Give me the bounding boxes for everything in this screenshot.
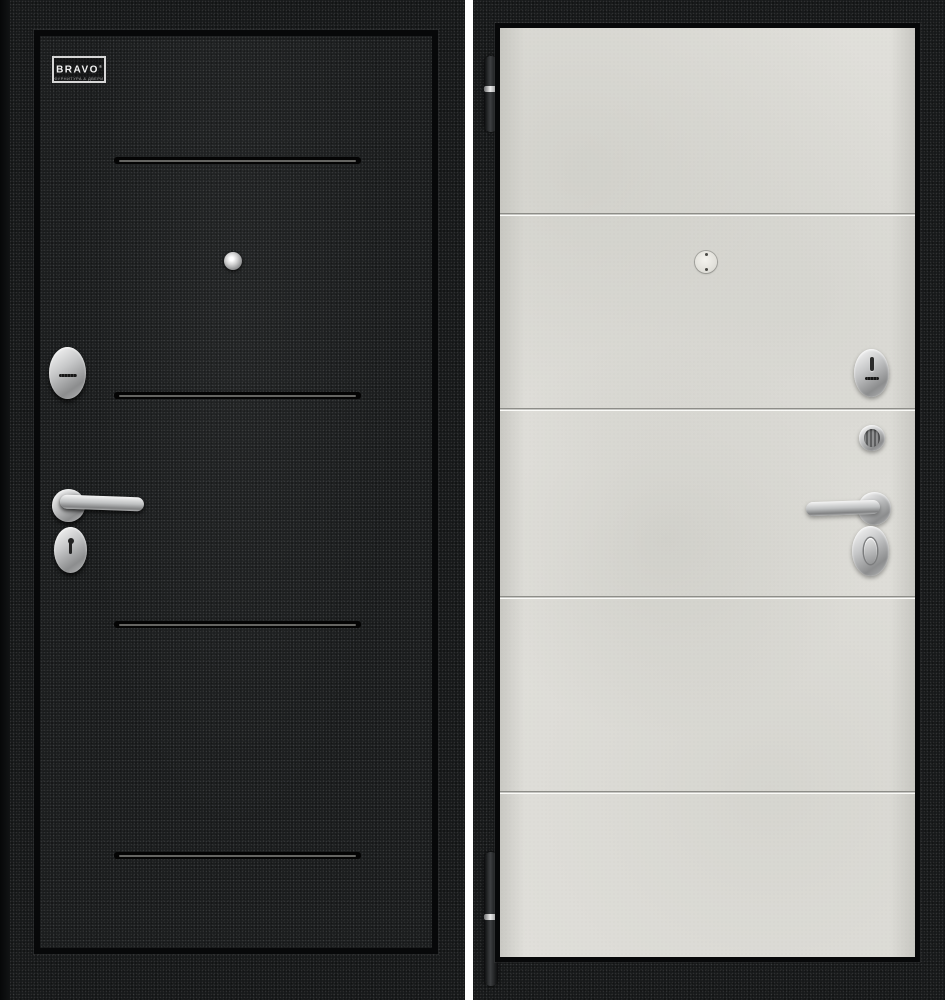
thumbturn-icon xyxy=(864,538,877,564)
cylinder-knob-icon xyxy=(859,425,885,451)
keyhole-slot-icon xyxy=(69,542,73,554)
peephole-icon xyxy=(224,252,242,270)
brand-tagline: ФУРНИТУРА & ДВЕРИ xyxy=(54,76,104,81)
lever-handle-icon xyxy=(60,495,144,512)
decor-groove xyxy=(114,621,361,628)
decor-groove xyxy=(114,157,361,164)
product-photo-two-door-views: BRAVO® ФУРНИТУРА & ДВЕРИ xyxy=(0,0,945,1000)
thumbturn-icon xyxy=(870,357,874,371)
decor-groove xyxy=(114,392,361,399)
keyhole-slot-icon xyxy=(865,377,879,380)
decor-groove xyxy=(500,596,915,600)
peephole-icon xyxy=(695,251,717,273)
oval-thumbturn-escutcheon-icon xyxy=(852,526,889,576)
lever-handle-icon xyxy=(806,500,880,517)
decor-groove xyxy=(114,852,361,859)
brand-name: BRAVO® xyxy=(54,61,104,75)
brand-logo-plate: BRAVO® ФУРНИТУРА & ДВЕРИ xyxy=(52,56,106,83)
exterior-door-photo: BRAVO® ФУРНИТУРА & ДВЕРИ xyxy=(0,0,465,1000)
cylinder-escutcheon-icon xyxy=(49,347,86,399)
decor-groove xyxy=(500,213,915,217)
knurled-face xyxy=(864,429,880,447)
door-frame-edge xyxy=(0,0,10,1000)
peephole-screw xyxy=(705,268,708,271)
decor-groove xyxy=(500,791,915,795)
leaf-sheen xyxy=(40,36,432,948)
interior-door-photo xyxy=(473,0,945,1000)
thumbturn-escutcheon-icon xyxy=(854,349,889,397)
registered-mark: ® xyxy=(99,64,102,69)
keyhole-slot-icon xyxy=(59,374,77,377)
door-leaf: BRAVO® ФУРНИТУРА & ДВЕРИ xyxy=(40,36,432,948)
peephole-screw xyxy=(705,253,708,256)
keyhole-escutcheon-icon xyxy=(54,527,87,573)
decor-groove xyxy=(500,408,915,412)
door-leaf xyxy=(500,28,915,957)
